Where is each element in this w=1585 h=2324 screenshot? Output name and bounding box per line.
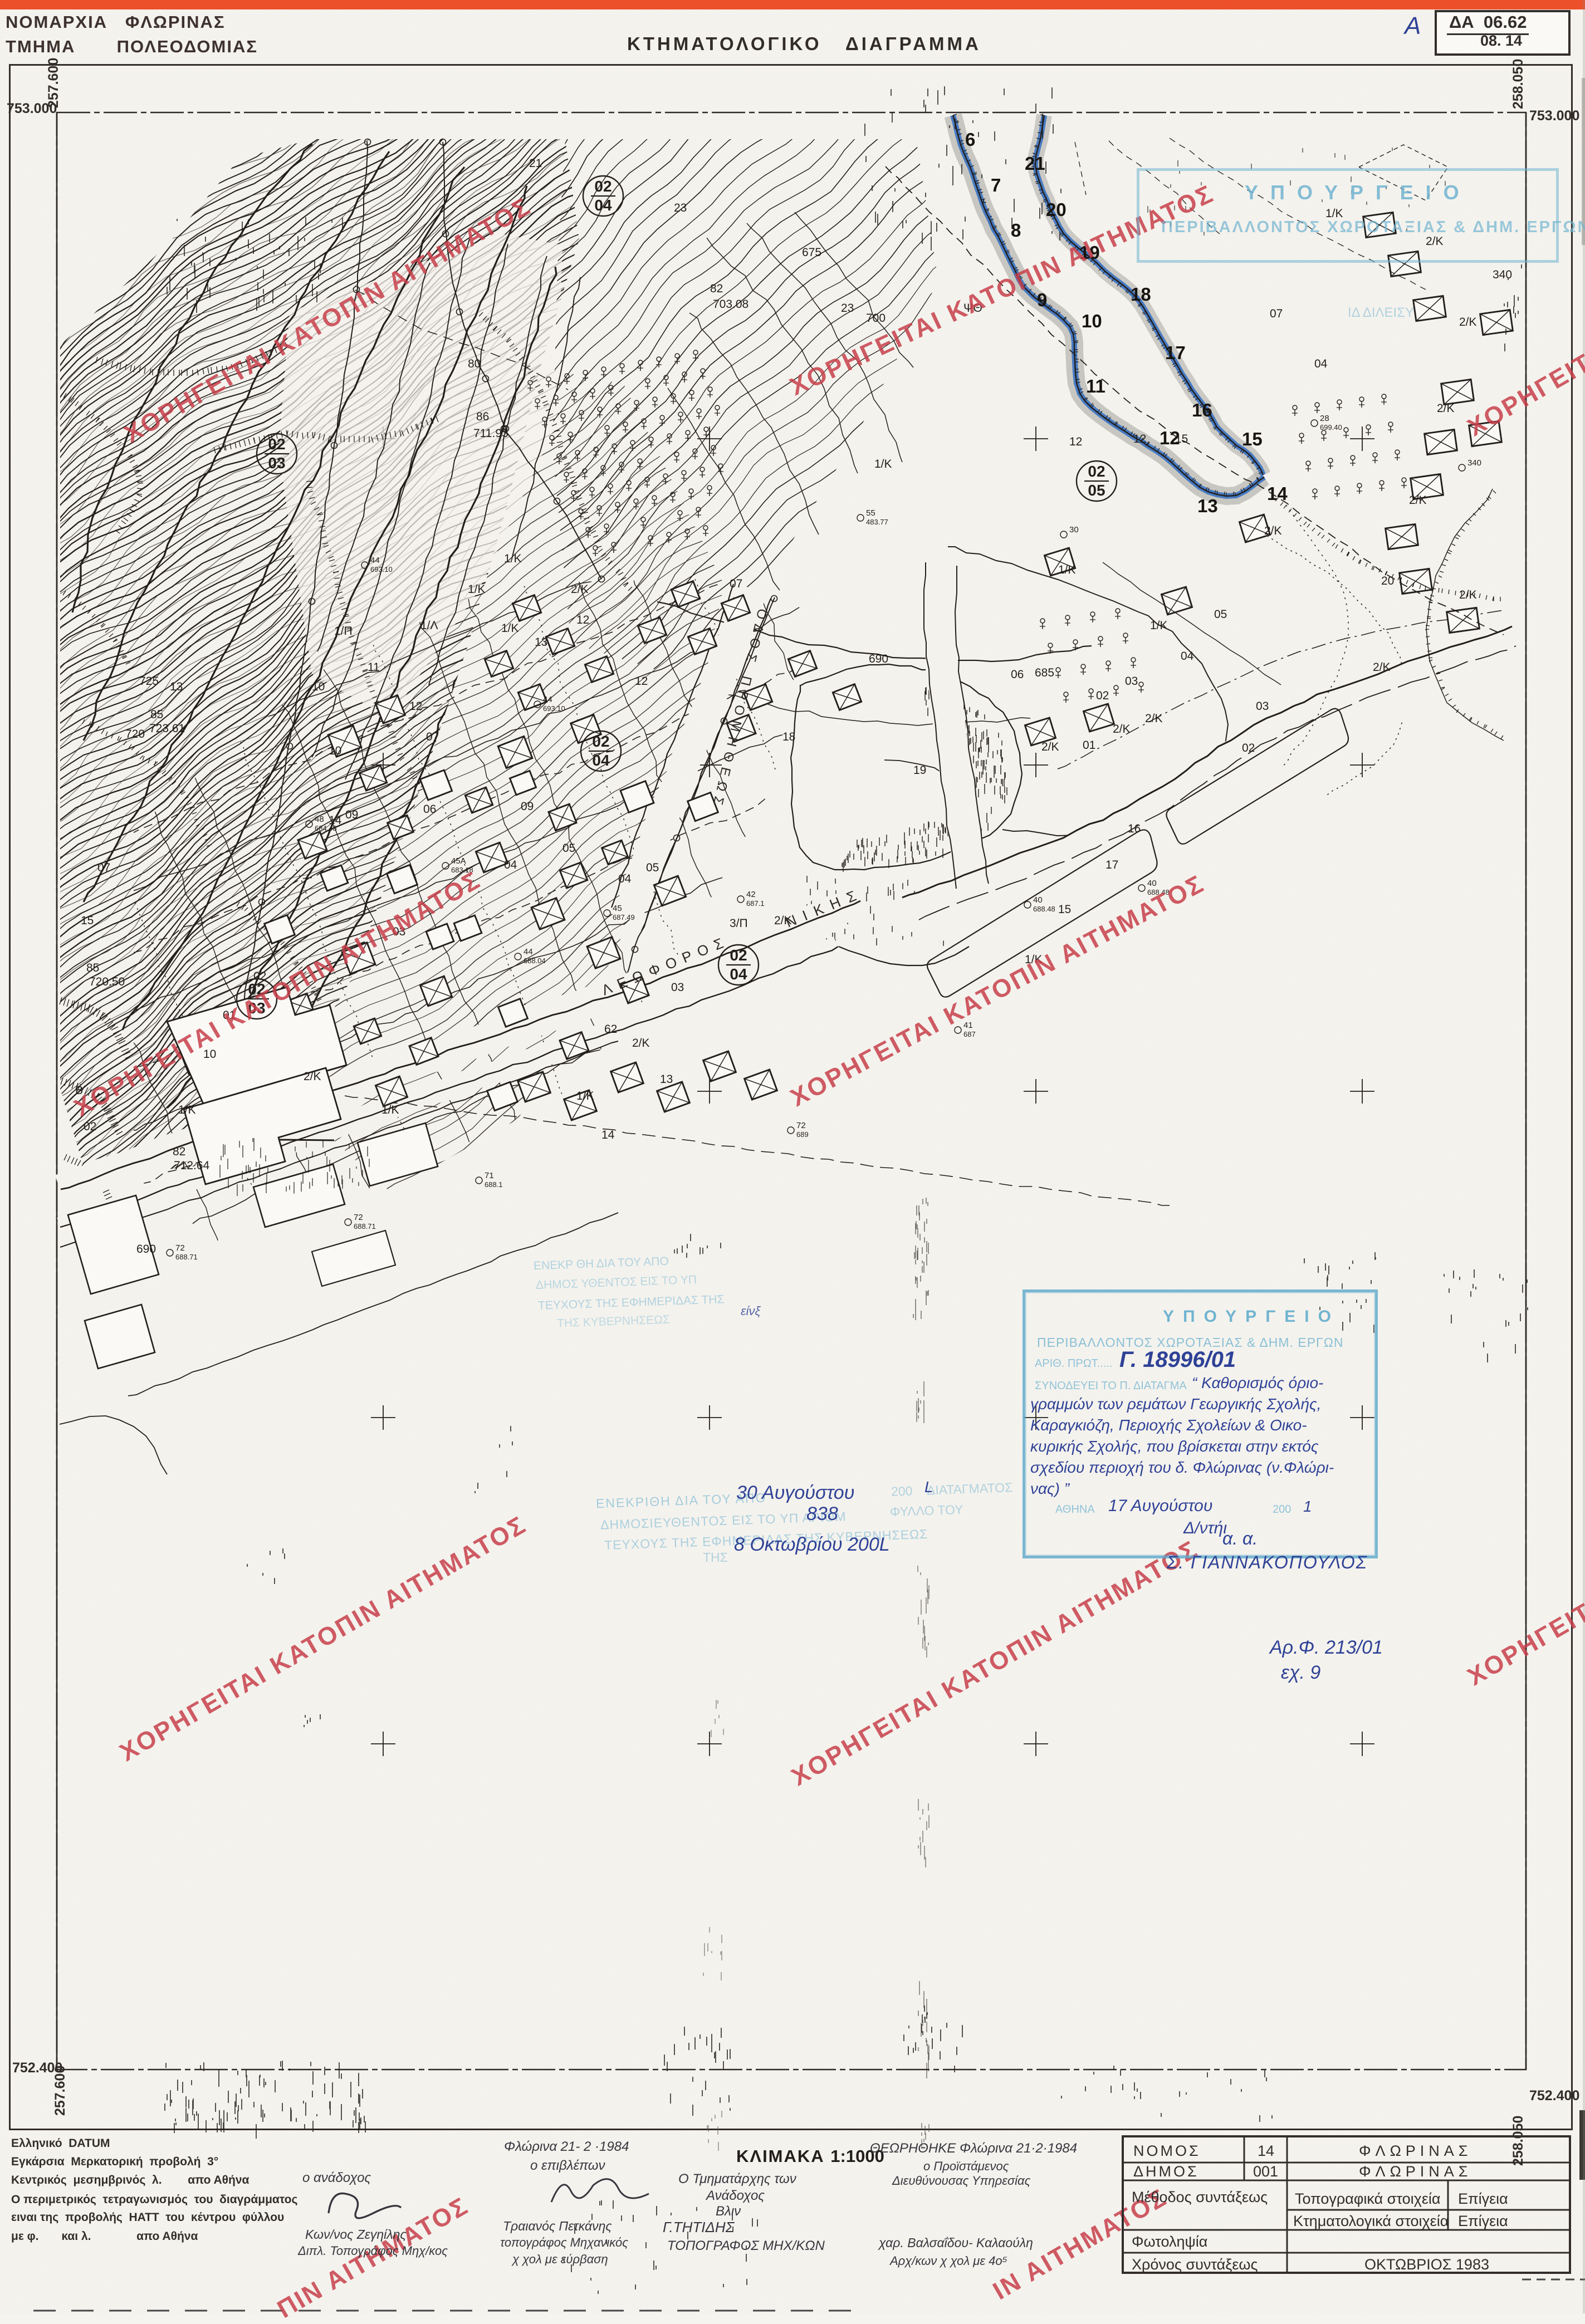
svg-text:687.1: 687.1 [746,899,765,908]
svg-text:72: 72 [796,1121,806,1130]
svg-text:17: 17 [1105,859,1118,871]
svg-text:688.48: 688.48 [1033,905,1055,913]
svg-text:30: 30 [1069,525,1079,535]
svg-text:15: 15 [1175,433,1188,445]
svg-text:04: 04 [1314,357,1328,370]
svg-text:04: 04 [618,872,632,885]
svg-text:Χρόνος συντάξεως: Χρόνος συντάξεως [1132,2256,1258,2273]
svg-text:28: 28 [1320,414,1329,423]
svg-text:693.10: 693.10 [370,565,393,573]
svg-text:688.04: 688.04 [524,957,546,965]
svg-text:04: 04 [1181,650,1194,663]
svg-text:ΝΟΜΟΣ: ΝΟΜΟΣ [1133,2142,1201,2159]
svg-text:21: 21 [1025,153,1045,174]
svg-text:13: 13 [170,680,183,693]
svg-text:71: 71 [485,1171,494,1180]
svg-text:06: 06 [1011,668,1024,681]
svg-text:04: 04 [504,859,517,871]
svg-text:2/Κ: 2/Κ [1459,316,1477,329]
svg-text:689: 689 [796,1130,809,1139]
svg-text:02: 02 [730,947,747,964]
svg-text:Κτηματολογικά στοιχεία: Κτηματολογικά στοιχεία [1293,2213,1449,2229]
svg-text:11: 11 [368,661,380,674]
svg-text:23: 23 [841,302,854,315]
svg-text:1/Κ: 1/Κ [874,458,892,470]
svg-text:340: 340 [1467,458,1481,468]
svg-text:725: 725 [139,675,159,688]
svg-text:12: 12 [1069,435,1082,448]
svg-text:Φωτοληψία: Φωτοληψία [1132,2233,1207,2250]
svg-text:14: 14 [601,1129,615,1141]
svg-text:ΦΛΩΡΙΝΑΣ: ΦΛΩΡΙΝΑΣ [1359,2163,1472,2180]
svg-text:04: 04 [594,197,612,214]
svg-text:1/Κ: 1/Κ [576,1090,594,1102]
svg-text:2/Κ: 2/Κ [1264,524,1282,537]
svg-text:15: 15 [1058,903,1071,916]
svg-text:18: 18 [1131,284,1151,305]
svg-text:2/Κ: 2/Κ [1459,589,1477,601]
svg-text:2/Κ: 2/Κ [1409,494,1427,507]
svg-text:23: 23 [674,202,687,214]
svg-text:03: 03 [268,454,285,472]
svg-text:15: 15 [1242,429,1263,449]
svg-text:72: 72 [354,1213,363,1222]
svg-text:712.64: 712.64 [174,1159,210,1172]
svg-text:753.000: 753.000 [1529,108,1579,124]
svg-text:86: 86 [476,410,489,423]
svg-text:19: 19 [913,764,926,777]
svg-text:02: 02 [84,1120,96,1133]
svg-text:10: 10 [312,680,325,693]
svg-text:05: 05 [1088,482,1105,499]
svg-text:44: 44 [543,695,552,704]
svg-text:07: 07 [426,730,439,743]
svg-text:703.08: 703.08 [713,298,749,311]
svg-text:12: 12 [635,675,648,688]
svg-text:07: 07 [1270,307,1283,320]
svg-text:09: 09 [521,800,534,813]
svg-text:720.50: 720.50 [89,975,125,988]
svg-text:10: 10 [1082,311,1102,331]
svg-text:688.1: 688.1 [485,1180,503,1189]
svg-text:700: 700 [866,312,886,325]
svg-text:02: 02 [594,178,612,195]
svg-text:13: 13 [535,636,547,649]
svg-text:05: 05 [646,861,659,874]
svg-text:693.10: 693.10 [543,704,565,713]
svg-text:82: 82 [710,282,723,295]
svg-text:685: 685 [1035,666,1054,679]
svg-text:80: 80 [468,357,481,370]
svg-text:40: 40 [1147,879,1157,888]
svg-text:720: 720 [125,728,145,741]
svg-text:1/Κ: 1/Κ [468,583,486,596]
svg-text:687.49: 687.49 [613,913,635,921]
svg-text:1/Κ: 1/Κ [1150,619,1168,632]
svg-text:17: 17 [1165,342,1186,363]
svg-text:2/Κ: 2/Κ [1373,661,1391,674]
svg-text:04: 04 [592,752,610,769]
svg-text:Επίγεια: Επίγεια [1458,2190,1508,2207]
svg-text:44: 44 [524,947,533,957]
svg-text:2/Κ: 2/Κ [1437,402,1455,415]
svg-text:340: 340 [1493,268,1512,281]
svg-text:257.600: 257.600 [52,2066,68,2116]
svg-text:699.40: 699.40 [1320,423,1342,432]
svg-text:72: 72 [175,1243,185,1253]
svg-text:02: 02 [1088,463,1105,480]
svg-text:48: 48 [315,815,324,824]
svg-text:690: 690 [869,653,888,665]
svg-text:01: 01 [1083,739,1095,752]
svg-text:16: 16 [1192,400,1212,420]
svg-text:2/Κ: 2/Κ [1145,712,1163,725]
svg-text:20: 20 [1046,199,1067,220]
svg-text:ΟΚΤΩΒΡΙΟΣ 1983: ΟΚΤΩΒΡΙΟΣ 1983 [1364,2256,1489,2273]
svg-text:12: 12 [1133,433,1146,445]
svg-text:16: 16 [1128,822,1141,835]
svg-text:12: 12 [576,614,589,626]
svg-text:752.400: 752.400 [1529,2088,1579,2104]
svg-text:21: 21 [529,157,542,170]
svg-text:1/Κ: 1/Κ [504,552,522,565]
svg-text:45: 45 [613,904,622,913]
svg-text:12: 12 [409,700,422,713]
svg-text:02: 02 [1242,742,1255,754]
svg-text:02: 02 [592,733,609,750]
svg-text:07: 07 [730,577,742,590]
svg-text:06: 06 [423,803,436,816]
svg-text:03: 03 [1125,675,1138,688]
svg-text:ΦΛΩΡΙΝΑΣ: ΦΛΩΡΙΝΑΣ [1359,2142,1472,2159]
svg-text:13: 13 [660,1073,673,1086]
svg-text:Τοπογραφικά στοιχεία: Τοπογραφικά στοιχεία [1295,2190,1440,2207]
svg-text:05: 05 [1214,608,1227,621]
svg-text:2/Κ: 2/Κ [1113,723,1131,736]
svg-text:82: 82 [173,1145,185,1158]
svg-text:7: 7 [991,175,1001,195]
svg-text:03: 03 [1256,700,1269,713]
svg-text:001: 001 [1253,2163,1278,2180]
svg-text:6: 6 [965,129,975,150]
svg-text:2/Κ: 2/Κ [1041,741,1059,753]
svg-text:483.77: 483.77 [866,518,888,526]
svg-text:Επίγεια: Επίγεια [1458,2213,1508,2229]
svg-text:42: 42 [746,890,756,899]
svg-text:723.61: 723.61 [149,722,185,735]
svg-text:2/Κ: 2/Κ [304,1070,321,1083]
svg-text:05: 05 [562,842,575,855]
svg-text:3/Π: 3/Π [730,917,748,930]
svg-text:2/Κ: 2/Κ [632,1037,650,1050]
svg-text:85: 85 [86,962,99,974]
svg-text:1/Λ: 1/Λ [420,619,438,632]
svg-text:1/Κ: 1/Κ [178,1104,196,1116]
svg-text:10: 10 [329,744,341,757]
svg-text:18: 18 [782,730,795,743]
svg-text:688.71: 688.71 [175,1253,198,1261]
svg-text:15: 15 [81,914,94,927]
svg-text:09: 09 [345,808,358,821]
svg-text:2/Κ: 2/Κ [571,583,589,596]
svg-text:257.600: 257.600 [46,58,61,108]
svg-text:1/Κ: 1/Κ [1058,563,1076,576]
svg-text:02: 02 [1096,689,1109,702]
svg-text:07: 07 [97,861,110,874]
svg-text:62: 62 [604,1023,617,1036]
svg-text:40: 40 [1033,895,1043,905]
svg-text:9: 9 [1037,290,1047,310]
svg-text:44: 44 [370,556,380,565]
svg-text:687: 687 [963,1030,976,1038]
svg-text:04: 04 [730,965,747,983]
svg-text:675: 675 [802,246,821,259]
svg-text:02: 02 [253,970,266,983]
svg-text:ΔΗΜΟΣ: ΔΗΜΟΣ [1133,2163,1199,2180]
svg-text:688.71: 688.71 [354,1222,376,1230]
svg-text:1/Κ: 1/Κ [381,1104,399,1116]
svg-text:02: 02 [268,435,285,453]
svg-text:258.050: 258.050 [1510,59,1526,109]
svg-text:1/Π: 1/Π [334,625,353,638]
svg-text:1/Κ: 1/Κ [501,622,519,635]
svg-text:03: 03 [671,981,684,994]
svg-text:85: 85 [150,708,163,721]
svg-text:684.48: 684.48 [315,824,337,832]
svg-text:20: 20 [1381,575,1394,587]
svg-text:690: 690 [136,1243,156,1256]
svg-text:55: 55 [866,508,875,518]
svg-text:14: 14 [1258,2142,1274,2159]
svg-text:14: 14 [1267,483,1288,504]
svg-text:711.93: 711.93 [473,427,508,440]
svg-text:13: 13 [1197,496,1218,516]
svg-text:Μέθοδος συντάξεως: Μέθοδος συντάξεως [1132,2189,1268,2205]
svg-text:45A: 45A [451,856,466,866]
